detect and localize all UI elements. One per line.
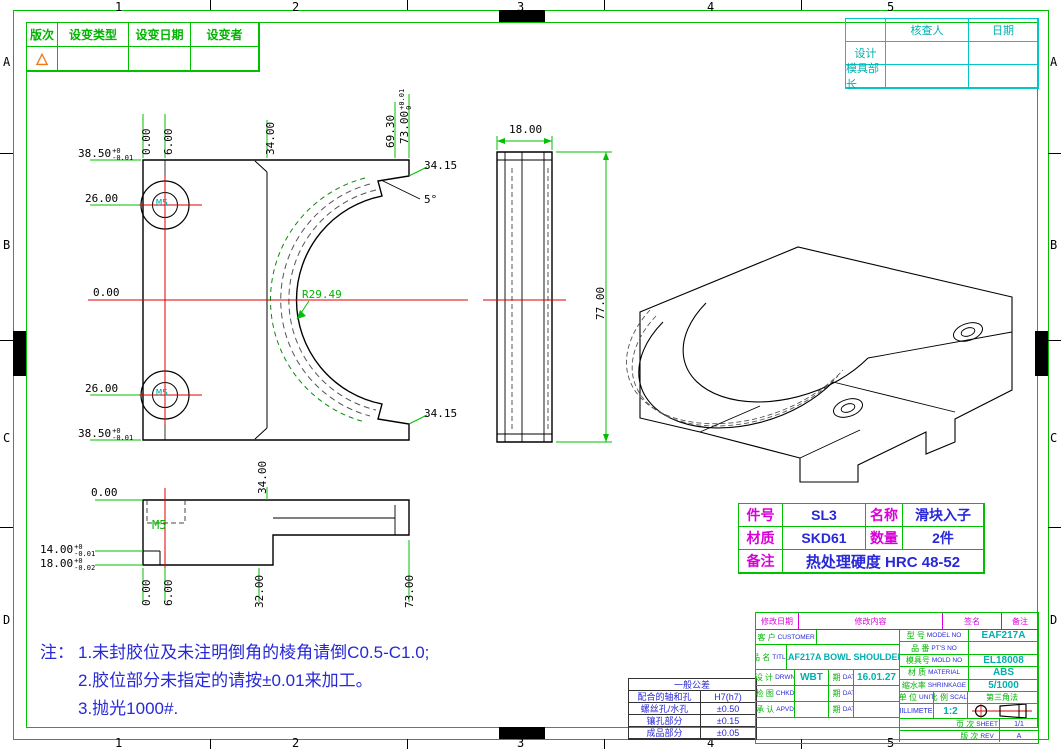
remark-value: 热处理硬度 HRC 48-52 bbox=[783, 550, 984, 573]
dim-bottom-18: 18.00+0-0.02 bbox=[40, 557, 95, 572]
model-value: EAF217A bbox=[969, 630, 1038, 641]
dim-front-x73: 73.00+0.010 bbox=[398, 89, 413, 144]
dim-front-angle: 5° bbox=[424, 193, 437, 206]
customer-value bbox=[817, 630, 899, 644]
zone-tick bbox=[407, 0, 408, 10]
zone-top-5: 5 bbox=[887, 0, 894, 14]
shrinkage-value: 5/1000 bbox=[969, 680, 1038, 691]
dim-side-width: 18.00 bbox=[509, 123, 542, 136]
qty-label: 数量 bbox=[866, 527, 903, 550]
scale-label: 比 例SCALE bbox=[934, 692, 968, 703]
dim-front-x6: 6.00 bbox=[162, 129, 175, 156]
app-moldchief-label: 模具部长 bbox=[846, 65, 886, 88]
tol-r4-value: ±0.05 bbox=[701, 727, 756, 739]
zone-bottom-1: 1 bbox=[115, 736, 122, 749]
zone-tick bbox=[0, 340, 13, 341]
centering-mark-top bbox=[499, 10, 545, 22]
app-cell bbox=[886, 42, 969, 65]
sheet-label: 页 次SHEET bbox=[955, 719, 1000, 730]
dim-front-x0: 0.00 bbox=[140, 129, 153, 156]
app-blank bbox=[846, 19, 886, 42]
centering-mark-right bbox=[1035, 331, 1048, 376]
model-label: 型 号MODEL NO bbox=[900, 630, 969, 641]
part-no-label: 件号 bbox=[739, 504, 783, 527]
zone-right-a: A bbox=[1050, 55, 1057, 69]
zone-left-c: C bbox=[3, 431, 10, 445]
mold-no-value: EL18008 bbox=[969, 655, 1038, 666]
app-cell bbox=[969, 42, 1038, 65]
title-label: 品 名TITLE bbox=[756, 645, 787, 669]
zone-tick bbox=[0, 527, 13, 528]
part-name-label: 名称 bbox=[866, 504, 903, 527]
hdr-mod-date: 修改日期 bbox=[756, 613, 799, 629]
rev-row-date bbox=[129, 47, 191, 71]
mold-no-label: 模具号MOLD NO bbox=[900, 655, 969, 666]
qty-value: 2件 bbox=[903, 527, 984, 550]
rev-header-date: 设变日期 bbox=[129, 23, 191, 47]
rev-row-type bbox=[58, 47, 129, 71]
dim-front-radius: R29.49 bbox=[302, 288, 342, 301]
label-m5-bottom-view: M5 bbox=[152, 518, 166, 532]
pts-no-value bbox=[969, 642, 1038, 653]
rev-header-type: 设变类型 bbox=[58, 23, 129, 47]
zone-tick bbox=[604, 739, 605, 749]
apvd-date-label: 日 期DATE bbox=[829, 702, 854, 717]
pts-no-label: 品 番PT'S NO bbox=[900, 642, 969, 653]
dim-side-height: 77.00 bbox=[594, 287, 607, 320]
zone-right-c: C bbox=[1050, 431, 1057, 445]
hdr-sign: 签名 bbox=[943, 613, 1002, 629]
zone-tick bbox=[801, 0, 802, 10]
rev-header-version: 版次 bbox=[27, 23, 58, 47]
material-value: SKD61 bbox=[783, 527, 866, 550]
chkd-date-value bbox=[854, 686, 899, 701]
rev-row-symbol: △ bbox=[27, 47, 58, 71]
title-block-empty-cell bbox=[756, 718, 899, 742]
centering-mark-bottom bbox=[499, 727, 545, 739]
centering-mark-left bbox=[13, 331, 26, 376]
approval-table: 核查人 日期 设计 模具部长 bbox=[845, 18, 1039, 89]
drwn-value: WBT bbox=[795, 670, 829, 685]
zone-tick bbox=[210, 739, 211, 749]
zone-left-a: A bbox=[3, 55, 10, 69]
dim-front-3415-bot: 34.15 bbox=[424, 407, 457, 420]
dim-front-y385b: 38.50+0-0.01 bbox=[78, 427, 133, 442]
tol-r2-value: ±0.50 bbox=[701, 703, 756, 715]
note-line-3: 3.抛光1000#. bbox=[78, 694, 178, 719]
rev-label: 版 次REV bbox=[955, 731, 1000, 742]
zone-tick bbox=[604, 0, 605, 10]
title-block: 修改日期 修改内容 签名 备注 客 户CUSTOMER 品 名TITLE EAF… bbox=[755, 612, 1039, 744]
tb-spacer bbox=[900, 731, 955, 742]
chkd-label: 检 图CHKD bbox=[756, 686, 795, 701]
title-value: EAF217A BOWL SHOULDER bbox=[787, 645, 899, 669]
unit-value: MILLIMETER bbox=[900, 704, 934, 718]
remark-label: 备注 bbox=[739, 550, 783, 573]
zone-right-b: B bbox=[1050, 238, 1057, 252]
apvd-label: 承 认APVD bbox=[756, 702, 795, 717]
rev-header-by: 设变者 bbox=[191, 23, 259, 47]
drwn-date-label: 日 期DATE bbox=[829, 670, 854, 685]
zone-left-d: D bbox=[3, 613, 10, 627]
zone-tick bbox=[210, 0, 211, 10]
tb-material-label: 材 质MATERIAL bbox=[900, 667, 969, 678]
dim-bottom-0top: 0.00 bbox=[91, 486, 118, 499]
title-block-header: 修改日期 修改内容 签名 备注 bbox=[756, 613, 1038, 630]
hdr-mod-content: 修改内容 bbox=[799, 613, 943, 629]
drwn-date-value: 16.01.27 bbox=[854, 670, 899, 685]
shrinkage-label: 缩水率SHRINKAGE bbox=[900, 680, 969, 691]
dim-bottom-b73: 73.00 bbox=[403, 575, 416, 608]
zone-right-d: D bbox=[1050, 613, 1057, 627]
note-line-1: 1.未封胶位及未注明倒角的棱角请倒C0.5-C1.0; bbox=[78, 638, 429, 663]
dim-front-3415-top: 34.15 bbox=[424, 159, 457, 172]
dim-bottom-b6: 6.00 bbox=[162, 580, 175, 607]
drwn-label: 设 计DRWN bbox=[756, 670, 795, 685]
label-m5-bottom: M5 bbox=[156, 388, 168, 399]
rev-value: A bbox=[1000, 731, 1038, 742]
app-date-header: 日期 bbox=[969, 19, 1038, 42]
projection-label: 第三角法 bbox=[968, 692, 1038, 703]
projection-symbol bbox=[972, 704, 1034, 718]
tol-r4-label: 成品部分 bbox=[629, 727, 701, 739]
rev-row-by bbox=[191, 47, 259, 71]
label-m5-top: M5 bbox=[156, 198, 168, 209]
dim-front-y385a: 38.50+0-0.01 bbox=[78, 147, 133, 162]
dim-front-x34: 34.00 bbox=[264, 122, 277, 155]
zone-top-2: 2 bbox=[292, 0, 299, 14]
tb-spacer bbox=[900, 719, 955, 730]
apvd-value bbox=[795, 702, 829, 717]
part-info-table: 件号 SL3 名称 滑块入子 材质 SKD61 数量 2件 备注 热处理硬度 H… bbox=[738, 503, 985, 574]
third-angle-projection-icon bbox=[968, 704, 1038, 718]
app-cell bbox=[969, 65, 1038, 88]
unit-label: 单 位UNIT bbox=[900, 692, 934, 703]
revision-triangle-icon: △ bbox=[36, 51, 48, 66]
drawing-sheet: 1 2 3 4 5 1 2 3 4 5 A B C D A B C D bbox=[0, 0, 1061, 749]
dim-bottom-14: 14.00+0-0.01 bbox=[40, 543, 95, 558]
tb-material-value: ABS bbox=[969, 667, 1038, 678]
zone-tick bbox=[1048, 340, 1061, 341]
dim-front-x69: 69.30 bbox=[384, 115, 397, 148]
customer-label: 客 户CUSTOMER bbox=[756, 630, 817, 644]
app-cell bbox=[886, 65, 969, 88]
part-name-value: 滑块入子 bbox=[903, 504, 984, 527]
notes-label: 注： bbox=[40, 638, 74, 663]
revision-table: 版次 设变类型 设变日期 设变者 △ bbox=[26, 22, 260, 72]
apvd-date-value bbox=[854, 702, 899, 717]
chkd-date-label: 日 期DATE bbox=[829, 686, 854, 701]
dim-front-y26a: 26.00 bbox=[85, 192, 118, 205]
zone-tick bbox=[1048, 527, 1061, 528]
zone-left-b: B bbox=[3, 238, 10, 252]
chkd-value bbox=[795, 686, 829, 701]
zone-tick bbox=[407, 739, 408, 749]
zone-top-4: 4 bbox=[707, 0, 714, 14]
material-label: 材质 bbox=[739, 527, 783, 550]
note-line-2: 2.胶位部分未指定的请按±0.01来加工。 bbox=[78, 666, 373, 691]
zone-tick bbox=[1048, 153, 1061, 154]
tol-r3-value: ±0.15 bbox=[701, 715, 756, 727]
tolerance-table: 一般公差 配合的轴和孔 H7(h7) 螺丝孔/水孔 ±0.50 镶孔部分 ±0.… bbox=[628, 678, 757, 740]
dim-bottom-b32: 32.00 bbox=[253, 575, 266, 608]
hdr-remark: 备注 bbox=[1002, 613, 1038, 629]
zone-top-1: 1 bbox=[115, 0, 122, 14]
zone-tick bbox=[0, 153, 13, 154]
sheet-value: 1/1 bbox=[1000, 719, 1038, 730]
dim-bottom-34: 34.00 bbox=[256, 461, 269, 494]
dim-front-y26b: 26.00 bbox=[85, 382, 118, 395]
dim-front-y0: 0.00 bbox=[93, 286, 120, 299]
app-checker-header: 核查人 bbox=[886, 19, 969, 42]
zone-bottom-2: 2 bbox=[292, 736, 299, 749]
dim-bottom-b0: 0.00 bbox=[140, 580, 153, 607]
part-no-value: SL3 bbox=[783, 504, 866, 527]
scale-value: 1:2 bbox=[934, 704, 968, 718]
tol-r1-value: H7(h7) bbox=[701, 691, 756, 703]
